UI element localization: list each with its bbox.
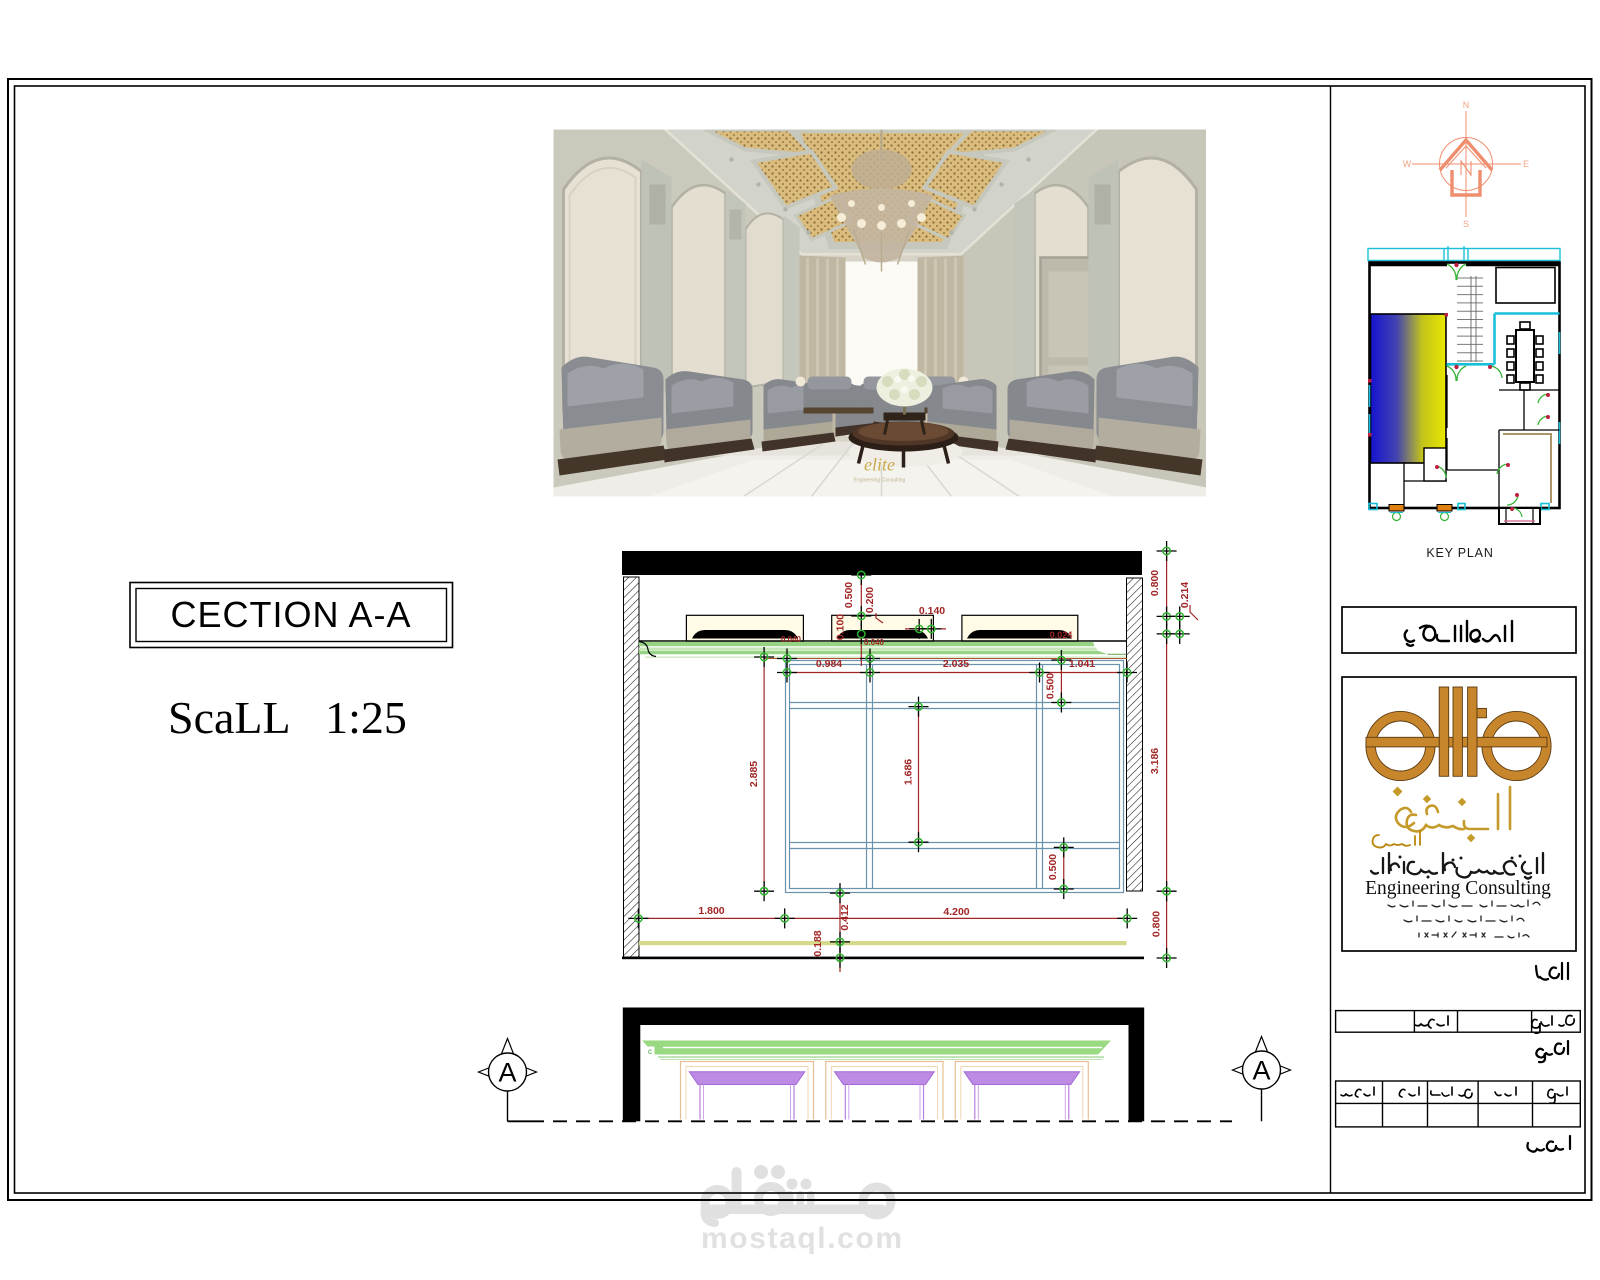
svg-text:0.188: 0.188 <box>812 930 824 956</box>
svg-text:0.800: 0.800 <box>1149 570 1161 596</box>
svg-text:Engineering Consulting: Engineering Consulting <box>1365 878 1551 899</box>
svg-text:0.500: 0.500 <box>1047 854 1059 880</box>
svg-text:4.200: 4.200 <box>943 906 969 918</box>
svg-text:0.040: 0.040 <box>864 638 885 647</box>
svg-text:1.686: 1.686 <box>903 759 915 785</box>
svg-text:CECTION A-A: CECTION A-A <box>170 594 411 635</box>
svg-text:0.040: 0.040 <box>781 635 802 644</box>
svg-text:S: S <box>1463 219 1469 229</box>
svg-text:A: A <box>1252 1056 1270 1086</box>
svg-text:0.984: 0.984 <box>816 658 842 670</box>
svg-text:N: N <box>1463 100 1470 110</box>
svg-text:0.214: 0.214 <box>1179 582 1191 608</box>
svg-text:0.412: 0.412 <box>839 904 851 930</box>
svg-text:W: W <box>1403 159 1412 169</box>
svg-text:1.041: 1.041 <box>1069 658 1095 670</box>
svg-text:A: A <box>498 1058 516 1088</box>
svg-text:0.800: 0.800 <box>1151 911 1163 937</box>
svg-text:1.800: 1.800 <box>698 905 724 917</box>
svg-text:mostaql.com: mostaql.com <box>701 1222 904 1255</box>
svg-text:3.186: 3.186 <box>1149 748 1161 774</box>
svg-text:elite: elite <box>864 455 895 475</box>
svg-text:0.024: 0.024 <box>1050 630 1073 640</box>
svg-text:KEY PLAN: KEY PLAN <box>1426 546 1493 560</box>
svg-text:0.200: 0.200 <box>864 587 876 613</box>
svg-text:Engineering Consulting: Engineering Consulting <box>854 478 906 484</box>
svg-text:0.100: 0.100 <box>835 614 847 640</box>
svg-text:0.140: 0.140 <box>919 605 945 617</box>
svg-text:0.500: 0.500 <box>1045 673 1057 699</box>
svg-text:2.885: 2.885 <box>748 761 760 787</box>
svg-text:ScaLL 1:25: ScaLL 1:25 <box>168 692 407 743</box>
svg-text:c: c <box>648 1047 652 1056</box>
svg-text:E: E <box>1523 159 1529 169</box>
svg-text:2.035: 2.035 <box>943 658 969 670</box>
svg-text:0.500: 0.500 <box>843 582 855 608</box>
